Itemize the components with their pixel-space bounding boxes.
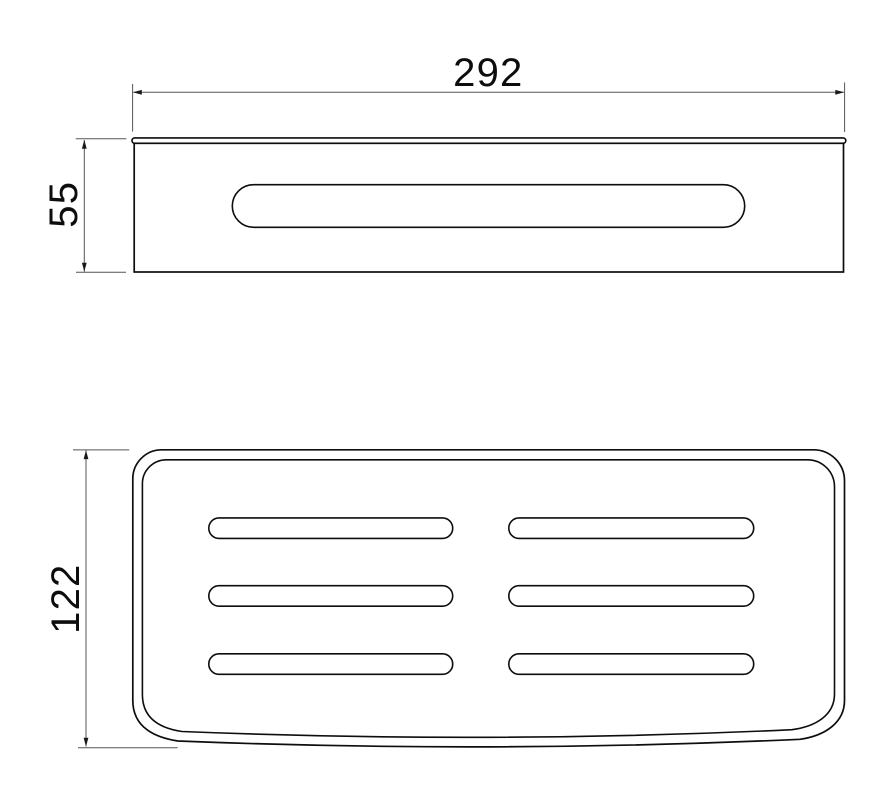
svg-text:292: 292 (453, 51, 523, 95)
svg-text:55: 55 (42, 181, 86, 228)
svg-text:122: 122 (44, 564, 88, 634)
